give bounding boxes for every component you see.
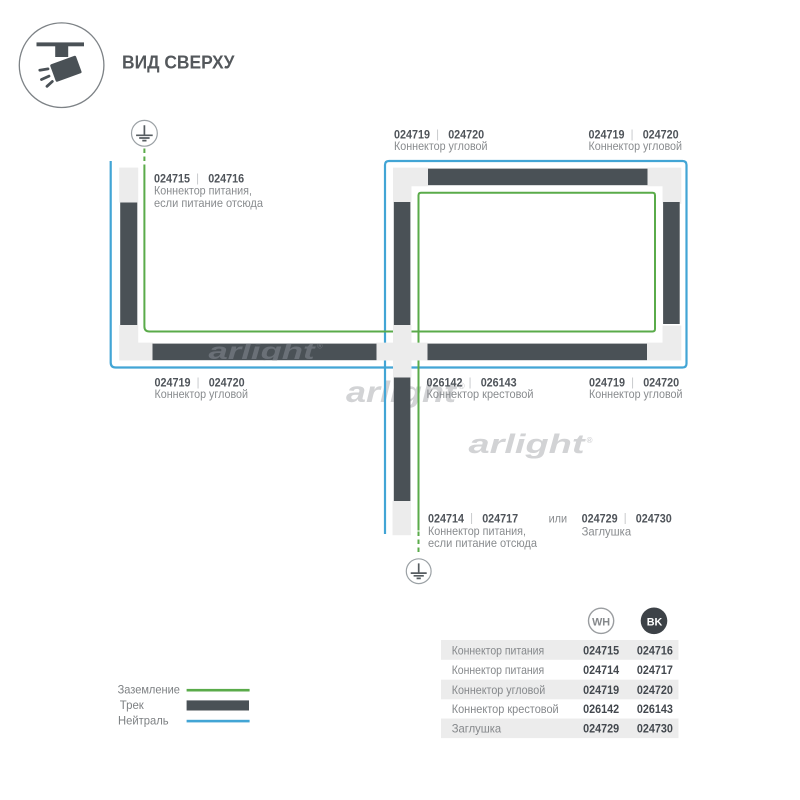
svg-text:024717: 024717	[637, 663, 673, 677]
svg-text:Заземление: Заземление	[118, 682, 180, 696]
svg-text:Коннектор угловой: Коннектор угловой	[155, 387, 249, 401]
svg-text:Коннектор питания: Коннектор питания	[452, 643, 545, 657]
svg-text:BK: BK	[647, 617, 663, 629]
svg-text:если питание отсюда: если питание отсюда	[154, 196, 263, 210]
svg-text:024720: 024720	[637, 683, 673, 697]
svg-text:Коннектор крестовой: Коннектор крестовой	[452, 702, 559, 716]
svg-text:Коннектор угловой: Коннектор угловой	[589, 387, 683, 401]
svg-text:arlight: arlight	[469, 429, 586, 459]
svg-text:Коннектор питания: Коннектор питания	[452, 663, 545, 677]
svg-text:024729: 024729	[583, 722, 619, 736]
svg-text:Заглушка: Заглушка	[452, 722, 502, 736]
svg-text:Трек: Трек	[120, 698, 145, 712]
svg-text:|: |	[624, 511, 627, 525]
svg-text:Коннектор угловой: Коннектор угловой	[589, 139, 683, 153]
svg-text:024715: 024715	[583, 643, 619, 657]
svg-text:WH: WH	[592, 617, 610, 629]
svg-text:Заглушка: Заглушка	[582, 524, 632, 538]
svg-text:Коннектор крестовой: Коннектор крестовой	[427, 387, 534, 401]
svg-text:Коннектор угловой: Коннектор угловой	[452, 683, 546, 697]
svg-text:026143: 026143	[637, 702, 673, 716]
svg-text:024730: 024730	[637, 722, 673, 736]
svg-text:024714: 024714	[583, 663, 619, 677]
svg-text:ВИД СВЕРХУ: ВИД СВЕРХУ	[122, 51, 235, 72]
svg-text:если питание отсюда: если питание отсюда	[428, 536, 537, 550]
svg-text:|: |	[470, 511, 473, 525]
svg-text:024716: 024716	[637, 643, 673, 657]
svg-text:или: или	[549, 511, 568, 525]
svg-text:®: ®	[587, 436, 593, 445]
svg-text:Коннектор угловой: Коннектор угловой	[394, 139, 488, 153]
svg-text:Нейтраль: Нейтраль	[118, 714, 169, 728]
svg-text:026142: 026142	[583, 702, 619, 716]
svg-text:024730: 024730	[636, 511, 672, 525]
svg-text:024729: 024729	[582, 511, 618, 525]
svg-text:024719: 024719	[583, 683, 619, 697]
